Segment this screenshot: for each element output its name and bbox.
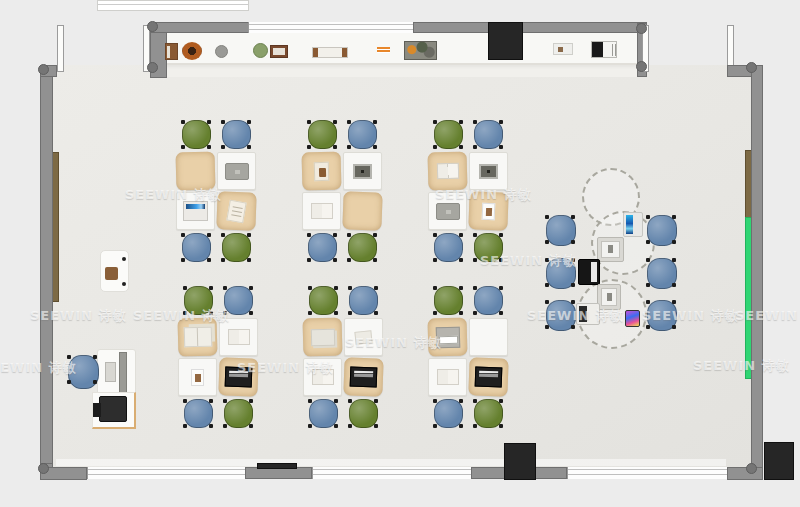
chair-green <box>182 285 215 316</box>
desk-tan <box>302 151 342 190</box>
desk-item-laptop-black <box>225 367 253 388</box>
chair-blue <box>182 398 215 429</box>
exterior-window-band <box>97 0 249 11</box>
chair-blue <box>472 285 505 316</box>
desk-item-book-open <box>311 203 333 219</box>
furniture-layer <box>0 0 800 507</box>
desk-white <box>176 192 215 230</box>
desk-cluster <box>176 119 258 263</box>
desk-item-device-white <box>435 326 460 348</box>
wall-bottom-right-corner <box>727 467 763 480</box>
chair-blue <box>645 214 679 247</box>
door-leaf-top-left-1 <box>57 25 64 72</box>
desk-tan <box>342 191 382 230</box>
desk-item-notebook <box>226 199 246 223</box>
floor-plan-canvas: SEEWIN 诗敏SEEWIN 诗敏SEEWIN 诗敏SEEWIN 诗敏SEEW… <box>0 0 800 507</box>
desk-tan <box>216 191 256 230</box>
desk-white <box>219 318 258 356</box>
desk-tan <box>178 317 218 356</box>
desk-item-photo-card <box>482 202 496 219</box>
desk-item-book-open <box>228 329 250 345</box>
desk-white <box>428 192 467 230</box>
chair-blue <box>347 285 380 316</box>
chair-green <box>472 232 505 263</box>
wall-black-sill <box>257 463 297 469</box>
desk-cluster <box>302 119 384 263</box>
chair-blue <box>432 232 465 263</box>
wall-top-a <box>150 22 250 33</box>
desk-cluster <box>178 285 260 429</box>
window-top <box>248 22 415 33</box>
desk-item-books-open <box>183 327 212 348</box>
device-tablet-blue <box>623 212 643 237</box>
wall-post <box>38 64 49 75</box>
desk-item-tablet-dark <box>353 164 372 179</box>
desk-white <box>469 152 508 190</box>
teacher-printer <box>99 396 127 422</box>
chair-blue <box>222 285 255 316</box>
desk-white <box>217 152 256 190</box>
desk-white <box>428 358 467 396</box>
teacher-chair <box>66 354 101 390</box>
desk-cluster <box>428 285 510 429</box>
desk-tan <box>303 317 343 356</box>
desk-item-book-open <box>312 369 334 385</box>
desk-tan <box>218 357 258 396</box>
wall-post <box>147 21 158 32</box>
chair-blue <box>645 299 679 332</box>
desk-cluster <box>428 119 510 263</box>
chair-blue <box>346 119 379 150</box>
desk-tan <box>343 357 383 396</box>
chair-green <box>432 119 465 150</box>
wall-right <box>751 65 763 480</box>
chair-green <box>432 285 465 316</box>
wall-top-b <box>413 22 647 33</box>
teacher-cabinet <box>100 250 129 292</box>
device-tablet-frame <box>597 237 624 262</box>
wall-post <box>636 61 647 72</box>
desk-white <box>469 318 508 356</box>
device-laptop-black-v <box>578 259 600 285</box>
desk-item-book-open <box>436 163 458 180</box>
desk-white <box>302 192 341 230</box>
desk-item-laptop-black <box>350 367 378 388</box>
desk-item-laptop-open <box>183 201 208 221</box>
wall-post <box>147 62 158 73</box>
chair-green <box>306 119 339 150</box>
chair-blue <box>306 232 339 263</box>
chair-blue <box>307 398 340 429</box>
desk-tan <box>176 151 216 190</box>
desk-white <box>344 318 383 356</box>
desk-white <box>178 358 217 396</box>
chair-green <box>307 285 340 316</box>
desk-tan <box>468 357 508 396</box>
desk-item-photo-card <box>191 369 204 386</box>
device-laptop-white <box>576 303 600 325</box>
chair-blue <box>472 119 505 150</box>
desk-item-tablet-dark <box>479 164 498 179</box>
desk-item-laptop-black <box>475 367 503 388</box>
wall-post <box>38 463 49 474</box>
desk-white <box>343 152 382 190</box>
chair-green <box>222 398 255 429</box>
chair-blue <box>432 398 465 429</box>
chair-blue <box>544 214 578 247</box>
wall-tv-screen <box>488 22 523 60</box>
chair-blue <box>645 257 679 290</box>
desk-tan <box>428 151 468 190</box>
wall-post <box>746 62 757 73</box>
chair-green <box>472 398 505 429</box>
desk-item-laptop-gray <box>436 203 460 220</box>
desk-white <box>303 358 342 396</box>
desk-item-laptop-gray <box>225 163 249 180</box>
chair-green <box>347 398 380 429</box>
wall-left <box>40 65 53 480</box>
window-bottom-1 <box>87 467 247 479</box>
desk-item-papers <box>310 328 334 346</box>
desk-tan <box>468 191 508 230</box>
desk-item-paper <box>354 330 372 345</box>
desk-item-book-closed <box>314 161 329 180</box>
chair-blue <box>180 232 213 263</box>
device-tablet-frame <box>597 284 621 310</box>
chair-blue <box>544 257 578 290</box>
chair-green <box>180 119 213 150</box>
column-bottom-center <box>504 443 536 480</box>
chair-green <box>346 232 379 263</box>
chair-green <box>220 232 253 263</box>
desk-cluster <box>303 285 385 429</box>
window-bottom-2 <box>312 467 473 479</box>
chair-blue <box>544 299 578 332</box>
device-phone-color <box>625 310 640 327</box>
wall-post <box>636 23 647 34</box>
wall-post <box>746 463 757 474</box>
teacher-tdesk <box>97 349 136 395</box>
window-bottom-3 <box>567 467 729 479</box>
desk-tan <box>428 317 468 356</box>
chair-blue <box>220 119 253 150</box>
column-bottom-right <box>764 442 794 480</box>
desk-item-book-open <box>437 369 459 385</box>
